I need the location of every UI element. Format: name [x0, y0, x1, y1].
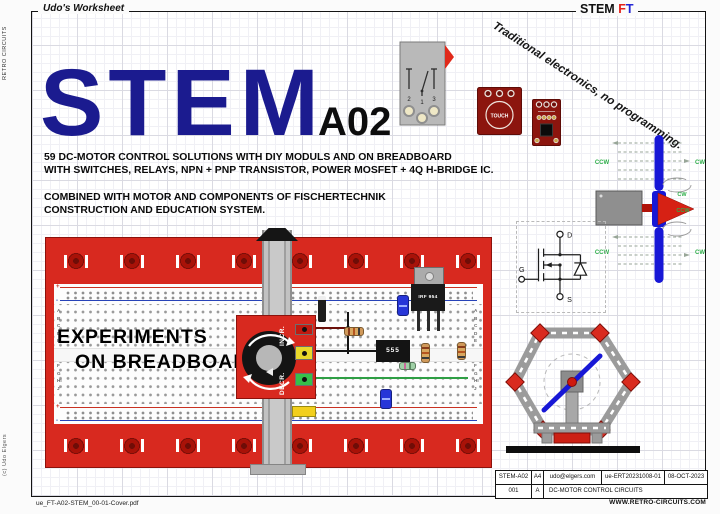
- footer-filename: ue_FT-A02-STEM_00-01-Cover.pdf: [36, 500, 139, 507]
- row-letters-right-top: ABCDE: [474, 307, 480, 345]
- brand-stem: STEM: [580, 2, 615, 16]
- rotation-arrows-icon: [237, 324, 303, 392]
- pad-icon: [497, 91, 503, 97]
- base-block-icon: [554, 433, 590, 443]
- transistor-leg: [437, 311, 440, 331]
- plus-sign: +: [56, 404, 60, 410]
- ft-strut-foot: [250, 464, 306, 475]
- intro-line-2: WITH SWITCHES, RELAYS, NPN + PNP TRANSIS…: [44, 164, 494, 178]
- pad-icon: [544, 102, 549, 107]
- pcb-module: [532, 99, 561, 146]
- page-title-stem: STEM: [40, 56, 324, 151]
- terminal-yellow: [295, 346, 313, 360]
- switch-module: 2 1 3: [399, 41, 455, 127]
- intro-line-3: COMBINED WITH MOTOR AND COMPONENTS OF FI…: [44, 191, 386, 205]
- terminal-green: [295, 373, 313, 386]
- resistor: [399, 362, 416, 370]
- fan-diagram: CCW CW CCW CW CW CCW: [588, 133, 714, 293]
- pad-icon: [485, 91, 491, 97]
- decr-label: DECR.: [279, 363, 286, 395]
- red-flag-icon: [445, 45, 454, 69]
- hexagon-construction: [498, 300, 658, 460]
- date-cell: 08-OCT-2023: [664, 471, 707, 484]
- solder-pad-icon: [417, 113, 427, 123]
- mosfet-drain-label: D: [567, 231, 572, 239]
- paper-size-cell: A4: [531, 471, 543, 484]
- propeller-blade-icon: [655, 227, 664, 283]
- row-letters-right-bottom: FGHIJ: [474, 362, 480, 392]
- doc-id-cell: STEM-A02: [496, 471, 531, 484]
- experiments-label: EXPERIMENTS: [57, 326, 208, 349]
- email-cell: udo@elgers.com: [543, 471, 601, 484]
- fan-cw-bottom-label: CW: [695, 250, 705, 256]
- transistor-leg: [427, 311, 430, 331]
- pad-icon: [551, 102, 556, 107]
- ref-cell: ue-ERT20231008-01: [601, 471, 664, 484]
- worksheet-page: Udo's Worksheet STEM FT RETRO CIRCUITS (…: [0, 0, 720, 514]
- diode: [318, 296, 326, 322]
- rotation-arc-icon: [663, 222, 691, 236]
- pad-icon: [552, 116, 556, 120]
- fan-cw-top-label: CW: [695, 160, 705, 166]
- doc-title-cell: DC-MOTOR CONTROL CIRCUITS: [543, 485, 707, 498]
- pad-icon: [554, 138, 558, 142]
- page-title-code: A02: [318, 100, 391, 145]
- stem-ft-logo: STEM FT: [576, 2, 638, 16]
- transistor-irf954: IRF 954: [411, 284, 445, 311]
- timer-ic-555: 555: [376, 340, 410, 362]
- side-label-retro-circuits: RETRO CIRCUITS: [2, 16, 8, 80]
- website-label: WWW.RETRO-CIRCUITS.COM: [500, 499, 706, 506]
- terminal-red: [295, 324, 313, 335]
- pad-icon: [508, 91, 514, 97]
- hub-icon: [568, 378, 577, 387]
- yellow-tag: [292, 406, 316, 417]
- rev-cell: A: [531, 485, 543, 498]
- title-block-row-1: STEM-A02 A4 udo@elgers.com ue-ERT2023100…: [496, 471, 707, 484]
- propeller-blade-icon: [655, 135, 664, 191]
- transistor-leg: [417, 311, 420, 331]
- capacitor: [380, 389, 392, 409]
- intro-line-4: CONSTRUCTION AND EDUCATION SYSTEM.: [44, 204, 265, 218]
- wire-green: [312, 377, 468, 379]
- airflow-arrows-top-icon: [618, 143, 684, 179]
- pad-icon: [547, 116, 551, 120]
- solder-pad-icon: [429, 106, 439, 116]
- intro-line-1: 59 DC-MOTOR CONTROL SOLUTIONS WITH DIY M…: [44, 151, 452, 165]
- brand-f: F: [618, 2, 626, 16]
- pad-icon: [536, 102, 541, 107]
- pad-icon: [537, 116, 541, 120]
- touch-label: TOUCH: [491, 114, 509, 120]
- hub-cw-label: CW: [677, 192, 687, 198]
- capacitor: [397, 295, 409, 316]
- row-letters-left-bottom: FGHIJ: [57, 362, 63, 392]
- sheet-cell: 001: [496, 485, 531, 498]
- title-block: STEM-A02 A4 udo@elgers.com ue-ERT2023100…: [495, 470, 708, 499]
- mosfet-gate-label: G: [519, 266, 525, 274]
- tab-hole-icon: [425, 272, 434, 281]
- worksheet-label: Udo's Worksheet: [38, 3, 129, 14]
- rotation-arc-icon: [663, 178, 691, 192]
- incr-label: INCR.: [279, 318, 286, 346]
- airflow-arrows-bottom-icon: [618, 237, 684, 264]
- shaft-icon: [642, 204, 652, 212]
- poti-module: INCR. DECR.: [236, 315, 316, 399]
- title-block-row-2: 001 A DC-MOTOR CONTROL CIRCUITS: [496, 484, 707, 498]
- chip-icon: [541, 124, 553, 136]
- resistor: [421, 343, 430, 363]
- ground-bar-icon: [506, 446, 640, 453]
- pad-icon: [542, 116, 546, 120]
- side-label-copyright: (c) Udo Elgers: [2, 410, 8, 476]
- touch-module: TOUCH: [477, 87, 522, 135]
- resistor: [457, 342, 466, 360]
- pillar-icon: [566, 392, 578, 424]
- motor-icon: [596, 191, 642, 225]
- pad-icon: [535, 138, 539, 142]
- fan-ccw-top-label: CCW: [595, 160, 610, 166]
- hub-ccw-label: CCW: [676, 208, 690, 214]
- resistor: [344, 327, 364, 336]
- plus-sign: +: [56, 284, 60, 290]
- brand-t: T: [626, 2, 634, 16]
- solder-pad-icon: [404, 106, 414, 116]
